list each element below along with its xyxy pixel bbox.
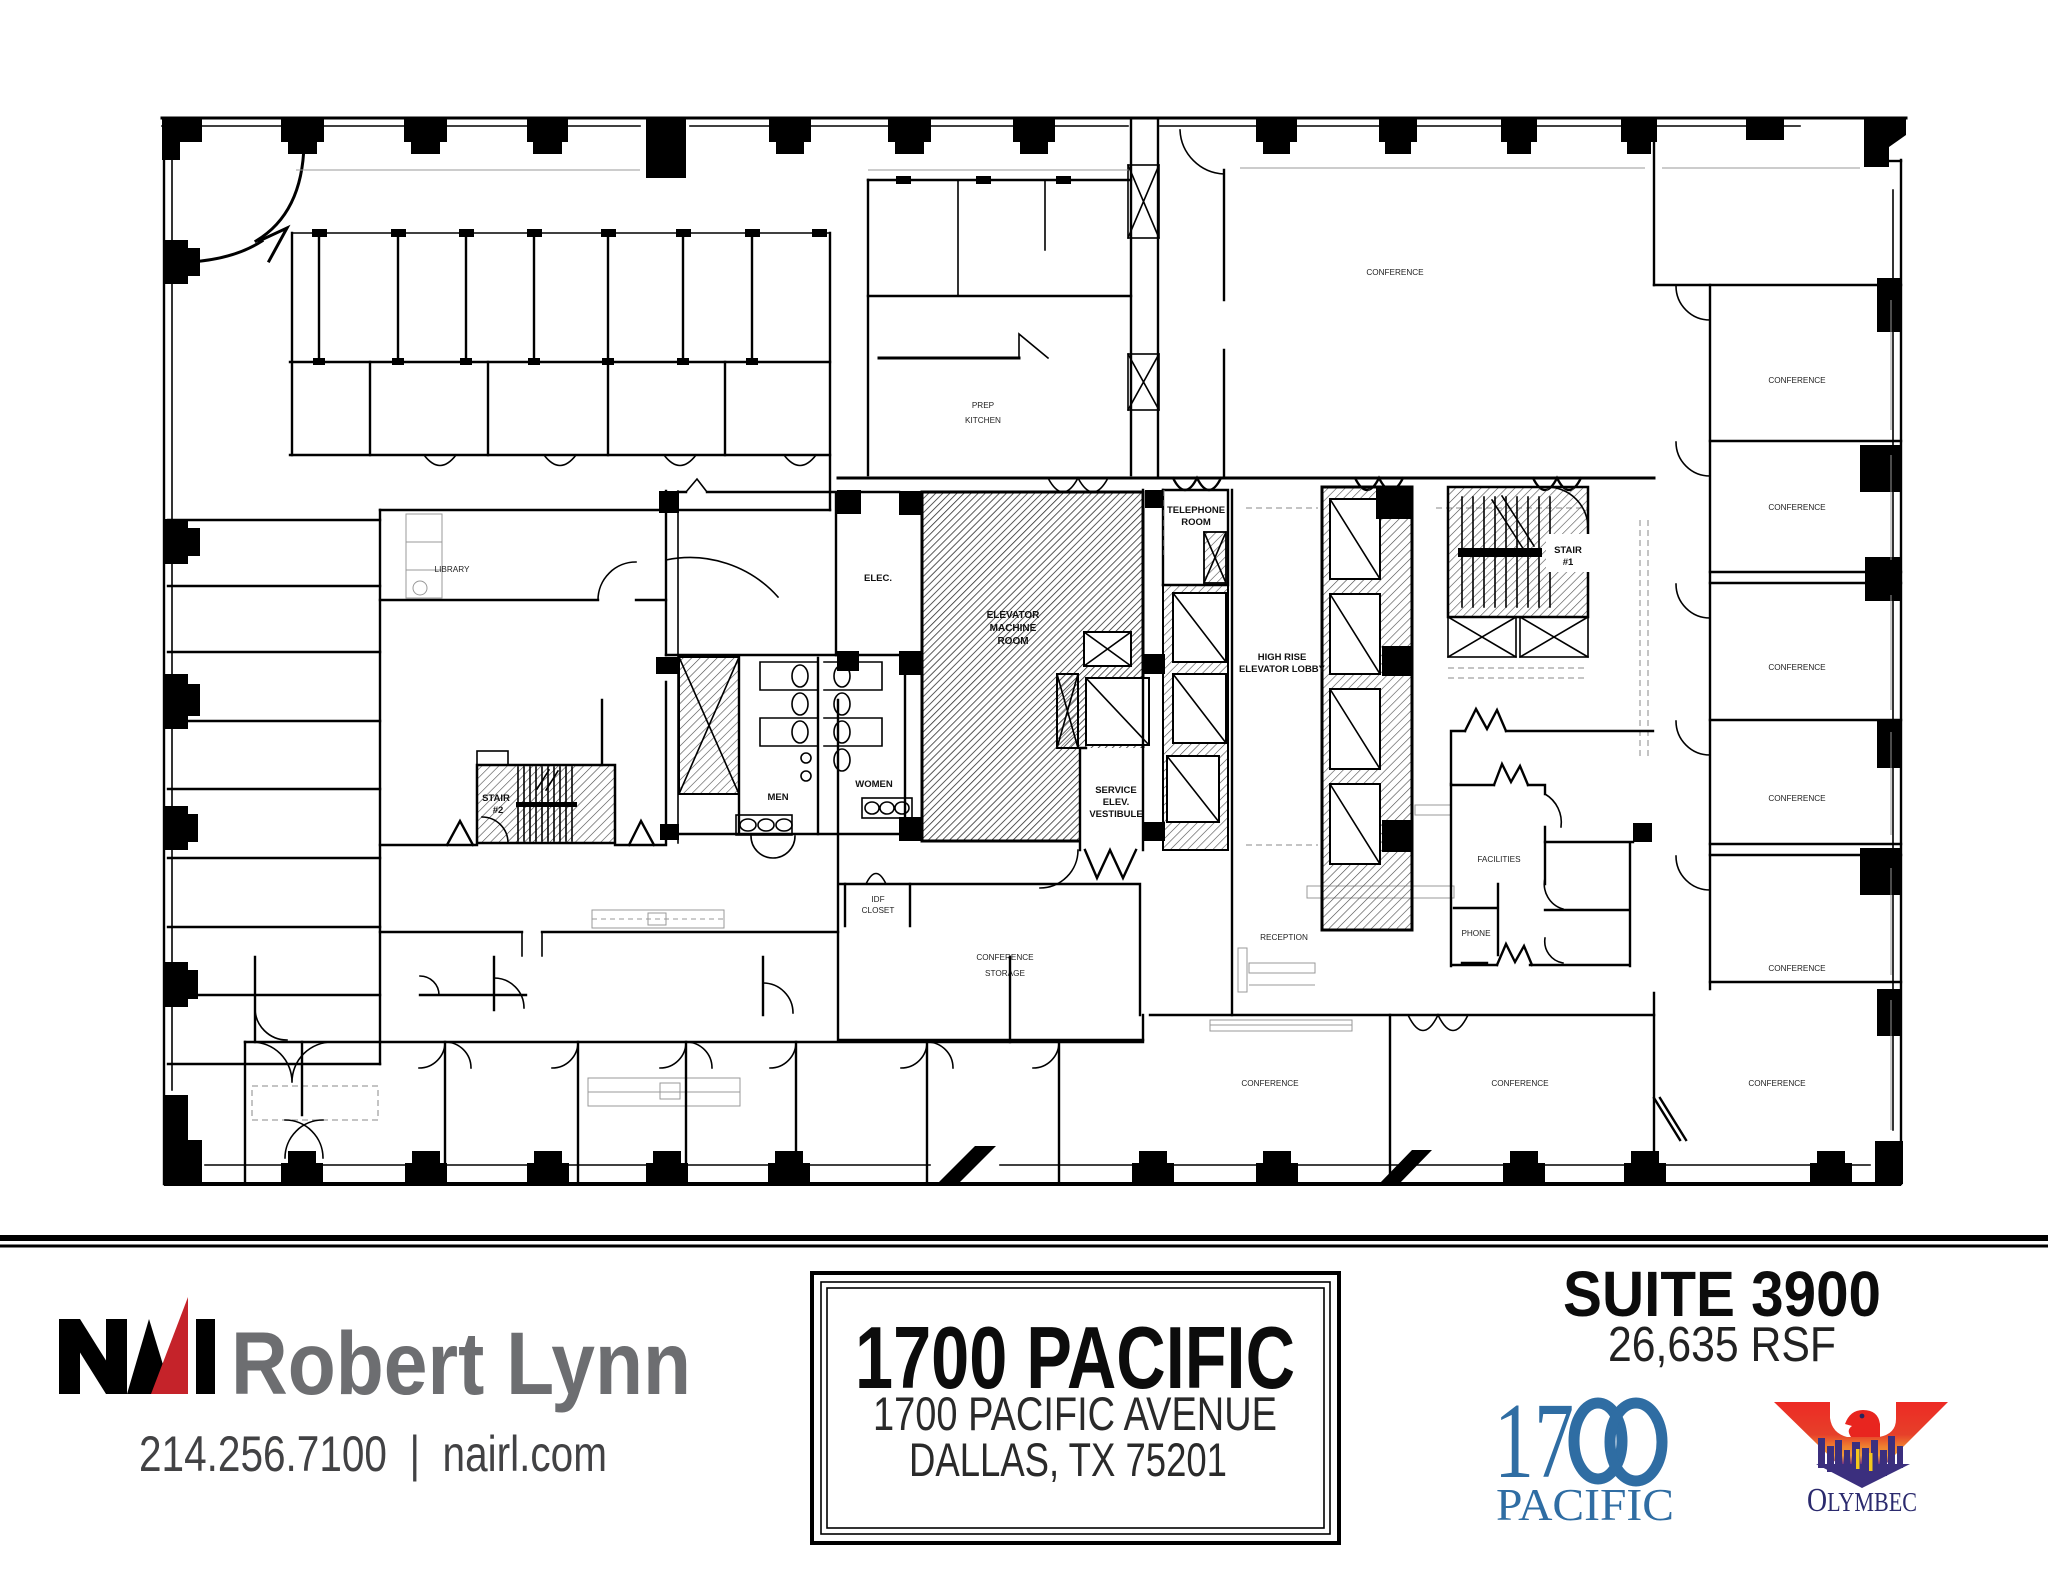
svg-text:PHONE: PHONE bbox=[1461, 929, 1491, 938]
svg-text:HIGH RISE: HIGH RISE bbox=[1258, 652, 1307, 663]
svg-text:ROOM: ROOM bbox=[997, 636, 1028, 647]
svg-text:CONFERENCE: CONFERENCE bbox=[1768, 376, 1826, 385]
svg-text:ELEVATOR LOBBY: ELEVATOR LOBBY bbox=[1239, 664, 1326, 675]
svg-text:CONFERENCE: CONFERENCE bbox=[1768, 503, 1826, 512]
svg-text:CONFERENCE: CONFERENCE bbox=[1241, 1079, 1299, 1088]
svg-text:CONFERENCE: CONFERENCE bbox=[1768, 663, 1826, 672]
svg-text:PACIFIC: PACIFIC bbox=[1496, 1479, 1674, 1530]
svg-text:WOMEN: WOMEN bbox=[855, 779, 893, 790]
svg-text:STAIR: STAIR bbox=[482, 793, 510, 804]
svg-text:FACILITIES: FACILITIES bbox=[1477, 855, 1521, 864]
svg-text:ELEV.: ELEV. bbox=[1103, 797, 1130, 808]
svg-text:CONFERENCE: CONFERENCE bbox=[1768, 794, 1826, 803]
svg-text:KITCHEN: KITCHEN bbox=[965, 416, 1001, 425]
svg-text:CONFERENCE: CONFERENCE bbox=[1366, 268, 1424, 277]
svg-text:MEN: MEN bbox=[767, 792, 788, 803]
svg-text:CONFERENCE: CONFERENCE bbox=[1768, 964, 1826, 973]
svg-text:ELEC.: ELEC. bbox=[864, 573, 892, 584]
svg-text:ROOM: ROOM bbox=[1181, 517, 1211, 528]
svg-text:STAIR: STAIR bbox=[1554, 545, 1582, 556]
svg-text:CONFERENCE: CONFERENCE bbox=[976, 953, 1034, 962]
svg-text:CLOSET: CLOSET bbox=[862, 906, 895, 915]
svg-text:#1: #1 bbox=[1563, 557, 1574, 568]
svg-text:DALLAS, TX 75201: DALLAS, TX 75201 bbox=[909, 1433, 1227, 1486]
svg-text:TELEPHONE: TELEPHONE bbox=[1167, 505, 1225, 516]
svg-text:LIBRARY: LIBRARY bbox=[435, 565, 470, 574]
svg-text:VESTIBULE: VESTIBULE bbox=[1089, 809, 1142, 820]
svg-text:OLYMBEC: OLYMBEC bbox=[1807, 1482, 1917, 1519]
svg-text:CONFERENCE: CONFERENCE bbox=[1491, 1079, 1549, 1088]
svg-text:IDF: IDF bbox=[871, 895, 884, 904]
svg-text:SERVICE: SERVICE bbox=[1095, 785, 1137, 796]
svg-text:MACHINE: MACHINE bbox=[990, 623, 1037, 634]
svg-text:CONFERENCE: CONFERENCE bbox=[1748, 1079, 1806, 1088]
svg-text:ELEVATOR: ELEVATOR bbox=[987, 610, 1041, 621]
svg-text:RECEPTION: RECEPTION bbox=[1260, 933, 1308, 942]
svg-text:PREP: PREP bbox=[972, 401, 995, 410]
svg-text:STORAGE: STORAGE bbox=[985, 969, 1025, 978]
svg-text:214.256.7100 | nairl.com: 214.256.7100 | nairl.com bbox=[139, 1426, 607, 1482]
svg-text:#2: #2 bbox=[493, 805, 504, 816]
svg-text:Robert Lynn: Robert Lynn bbox=[231, 1313, 691, 1413]
svg-text:26,635 RSF: 26,635 RSF bbox=[1608, 1318, 1836, 1372]
